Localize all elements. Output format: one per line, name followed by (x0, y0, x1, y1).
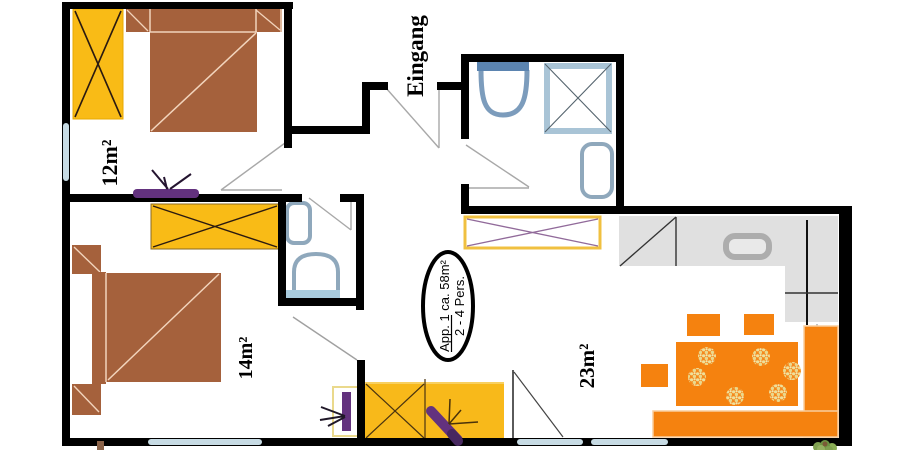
svg-text:2 - 4 Pers.: 2 - 4 Pers. (452, 276, 467, 336)
svg-text:23m²: 23m² (575, 344, 599, 389)
svg-text:12m²: 12m² (97, 139, 122, 186)
svg-text:Eingang: Eingang (403, 15, 428, 97)
svg-text:App. 1 ca. 58m²: App. 1 ca. 58m² (437, 259, 452, 351)
svg-text:14m²: 14m² (235, 337, 257, 380)
